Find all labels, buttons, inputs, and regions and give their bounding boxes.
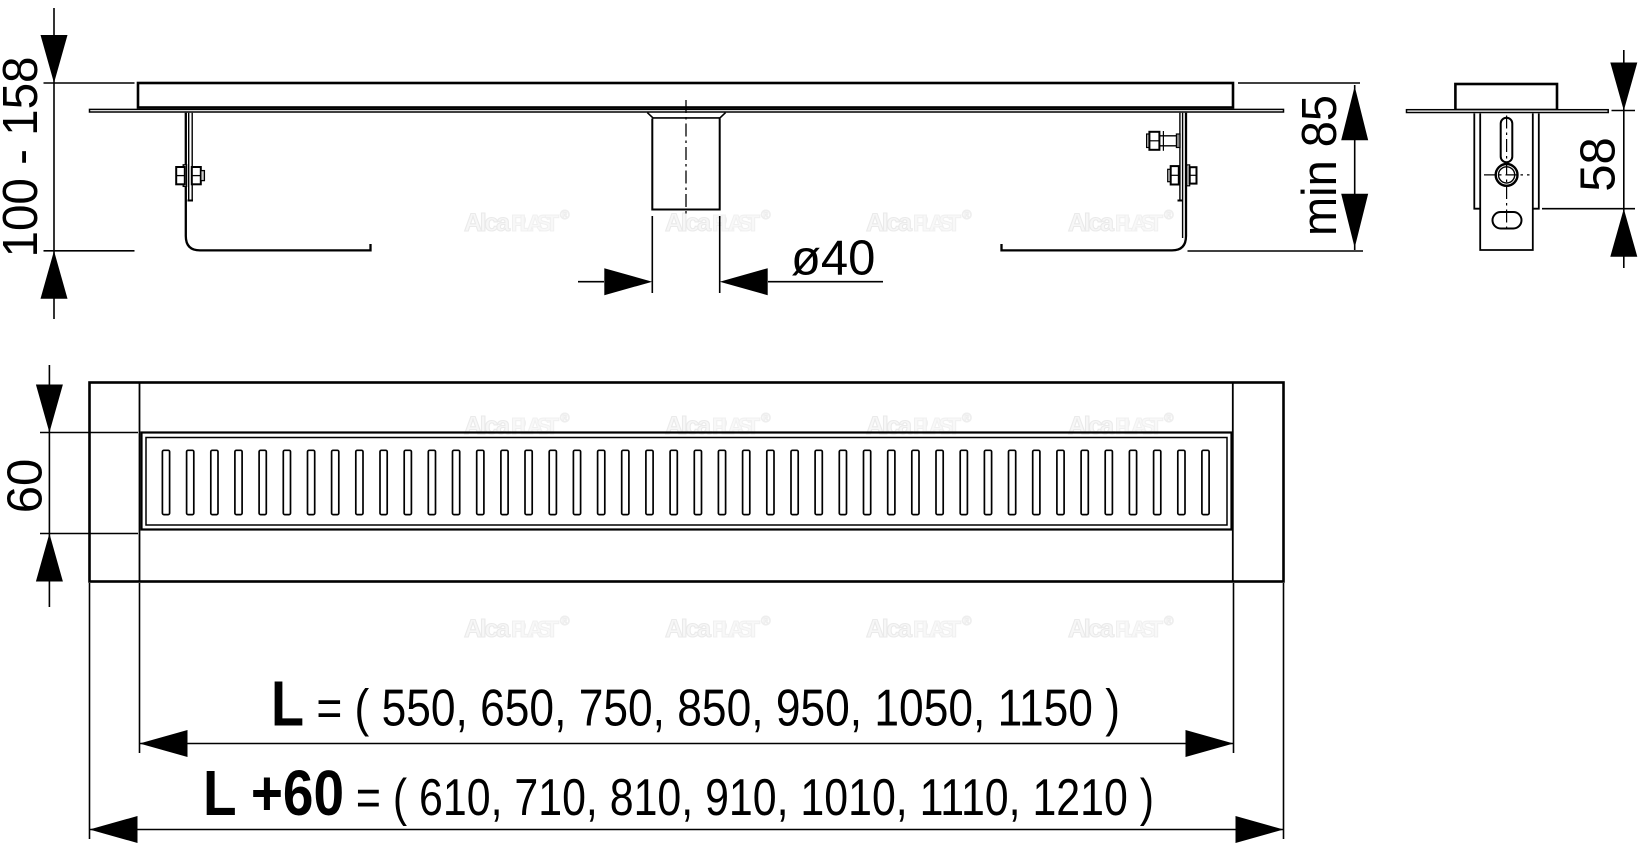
svg-text:Alca: Alca bbox=[866, 615, 913, 643]
svg-text:PLAST: PLAST bbox=[511, 616, 559, 642]
svg-text:PLAST: PLAST bbox=[511, 210, 559, 236]
svg-text:ø40: ø40 bbox=[791, 232, 875, 286]
svg-text:®: ® bbox=[761, 613, 771, 628]
svg-text:Alca: Alca bbox=[665, 209, 712, 237]
svg-text:PLAST: PLAST bbox=[1115, 413, 1163, 439]
svg-text:Alca: Alca bbox=[464, 209, 511, 237]
svg-text:Alca: Alca bbox=[464, 615, 511, 643]
svg-text:min 85: min 85 bbox=[1293, 95, 1347, 236]
svg-text:100 - 158: 100 - 158 bbox=[0, 57, 48, 258]
svg-text:PLAST: PLAST bbox=[913, 210, 961, 236]
svg-text:Alca: Alca bbox=[1068, 412, 1115, 440]
svg-text:PLAST: PLAST bbox=[1115, 210, 1163, 236]
svg-text:®: ® bbox=[560, 207, 570, 222]
svg-text:Alca: Alca bbox=[866, 412, 913, 440]
svg-text:58: 58 bbox=[1572, 137, 1626, 192]
svg-text:®: ® bbox=[1164, 207, 1174, 222]
svg-text:PLAST: PLAST bbox=[913, 413, 961, 439]
svg-text:®: ® bbox=[962, 613, 972, 628]
svg-text:Alca: Alca bbox=[1068, 209, 1115, 237]
svg-text:®: ® bbox=[1164, 410, 1174, 425]
svg-text:Alca: Alca bbox=[665, 615, 712, 643]
svg-text:PLAST: PLAST bbox=[913, 616, 961, 642]
svg-text:PLAST: PLAST bbox=[511, 413, 559, 439]
svg-text:PLAST: PLAST bbox=[712, 616, 760, 642]
svg-text:PLAST: PLAST bbox=[712, 210, 760, 236]
svg-text:Alca: Alca bbox=[866, 209, 913, 237]
svg-text:PLAST: PLAST bbox=[712, 413, 760, 439]
svg-text:®: ® bbox=[761, 410, 771, 425]
svg-text:®: ® bbox=[560, 613, 570, 628]
svg-text:Alca: Alca bbox=[464, 412, 511, 440]
svg-text:®: ® bbox=[761, 207, 771, 222]
svg-text:Alca: Alca bbox=[1068, 615, 1115, 643]
svg-text:®: ® bbox=[962, 410, 972, 425]
svg-text:Alca: Alca bbox=[665, 412, 712, 440]
svg-text:®: ® bbox=[962, 207, 972, 222]
svg-text:60: 60 bbox=[0, 459, 53, 514]
svg-text:®: ® bbox=[560, 410, 570, 425]
svg-text:®: ® bbox=[1164, 613, 1174, 628]
svg-text:PLAST: PLAST bbox=[1115, 616, 1163, 642]
